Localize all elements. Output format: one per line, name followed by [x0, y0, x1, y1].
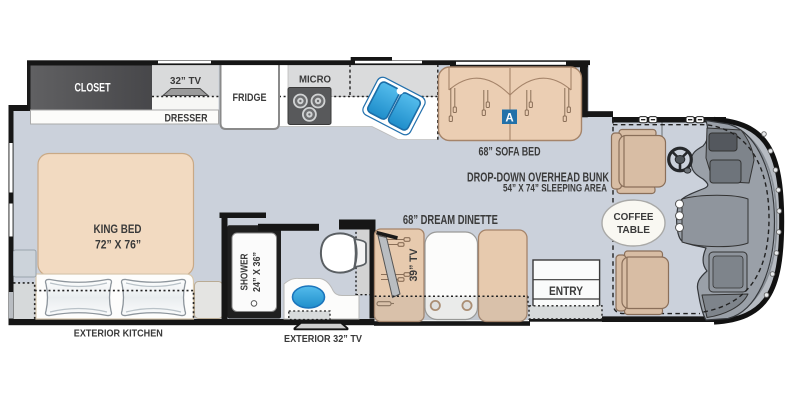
svg-text:CLOSET: CLOSET: [75, 81, 111, 95]
svg-text:EXTERIOR KITCHEN: EXTERIOR KITCHEN: [74, 327, 163, 339]
svg-text:24” X 36”: 24” X 36”: [252, 252, 263, 292]
svg-text:DRESSER: DRESSER: [165, 113, 208, 125]
svg-text:COFFEE: COFFEE: [614, 211, 654, 223]
svg-text:32” TV: 32” TV: [170, 75, 201, 87]
svg-text:SHOWER: SHOWER: [240, 254, 251, 291]
svg-text:EXTERIOR 32” TV: EXTERIOR 32” TV: [284, 333, 362, 345]
svg-text:54” X 74” SLEEPING AREA: 54” X 74” SLEEPING AREA: [503, 183, 607, 195]
svg-text:39” TV: 39” TV: [408, 248, 420, 282]
svg-text:68” DREAM DINETTE: 68” DREAM DINETTE: [403, 213, 498, 227]
svg-text:72” X 76”: 72” X 76”: [95, 239, 141, 251]
svg-text:ENTRY: ENTRY: [549, 286, 583, 298]
svg-text:MICRO: MICRO: [299, 73, 331, 85]
svg-text:FRIDGE: FRIDGE: [233, 92, 267, 104]
svg-text:KING BED: KING BED: [94, 224, 142, 236]
svg-text:68” SOFA BED: 68” SOFA BED: [479, 145, 541, 159]
svg-text:A: A: [505, 112, 513, 124]
svg-text:TABLE: TABLE: [617, 224, 650, 236]
